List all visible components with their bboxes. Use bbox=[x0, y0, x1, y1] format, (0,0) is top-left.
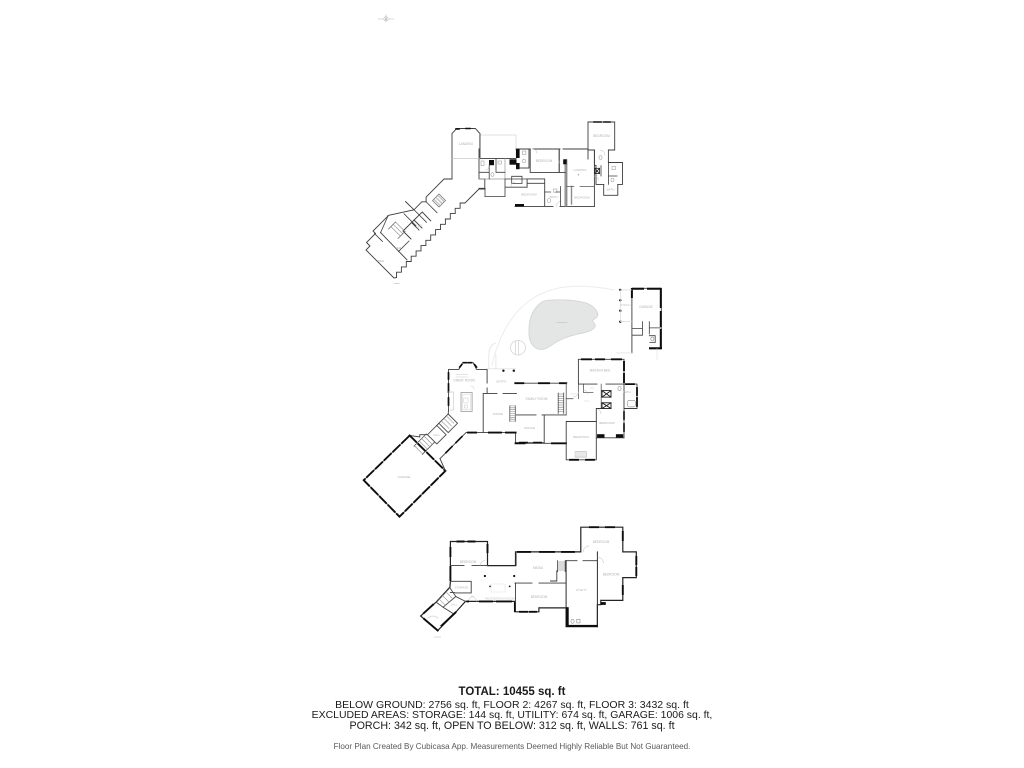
svg-text:PORCH: PORCH bbox=[620, 303, 630, 307]
svg-text:BEDROOM: BEDROOM bbox=[521, 193, 537, 197]
svg-text:MASTER BED: MASTER BED bbox=[590, 369, 611, 373]
svg-text:HALL: HALL bbox=[415, 222, 423, 230]
svg-text:BEDROOM: BEDROOM bbox=[574, 196, 590, 200]
svg-text:BEDROOM: BEDROOM bbox=[460, 560, 477, 564]
svg-text:GREAT ROOM: GREAT ROOM bbox=[453, 379, 475, 383]
svg-text:DINING: DINING bbox=[493, 412, 504, 416]
svg-text:OFFICE: OFFICE bbox=[524, 426, 535, 430]
svg-text:MEDIA: MEDIA bbox=[533, 566, 544, 570]
svg-text:BEDROOM: BEDROOM bbox=[593, 540, 610, 544]
svg-text:HALL: HALL bbox=[434, 433, 441, 437]
svg-text:BATH: BATH bbox=[607, 188, 615, 192]
svg-text:ENTRY: ENTRY bbox=[496, 380, 506, 384]
svg-text:STORAGE: STORAGE bbox=[455, 586, 469, 590]
svg-text:GARAGE: GARAGE bbox=[639, 305, 653, 309]
svg-text:GARAGE: GARAGE bbox=[398, 475, 411, 479]
svg-text:BEDROOM: BEDROOM bbox=[603, 573, 620, 577]
svg-text:BEDROOM: BEDROOM bbox=[536, 159, 553, 163]
svg-text:BEDROOM: BEDROOM bbox=[531, 595, 548, 599]
svg-text:UTILITY: UTILITY bbox=[576, 588, 587, 592]
svg-text:BEDROOM: BEDROOM bbox=[593, 134, 610, 138]
svg-text:BATH: BATH bbox=[550, 195, 558, 199]
svg-text:HALL: HALL bbox=[451, 603, 458, 607]
svg-text:LANDING: LANDING bbox=[459, 142, 474, 146]
svg-text:FAMILY ROOM: FAMILY ROOM bbox=[526, 397, 548, 401]
svg-text:BEDROOM: BEDROOM bbox=[599, 421, 615, 425]
svg-text:BEDROOM: BEDROOM bbox=[573, 435, 589, 439]
svg-text:BED: BED bbox=[378, 259, 385, 263]
svg-text:RECREATION ROOM: RECREATION ROOM bbox=[485, 597, 515, 601]
svg-text:LANDING: LANDING bbox=[573, 168, 587, 172]
svg-text:BATH: BATH bbox=[623, 390, 630, 394]
